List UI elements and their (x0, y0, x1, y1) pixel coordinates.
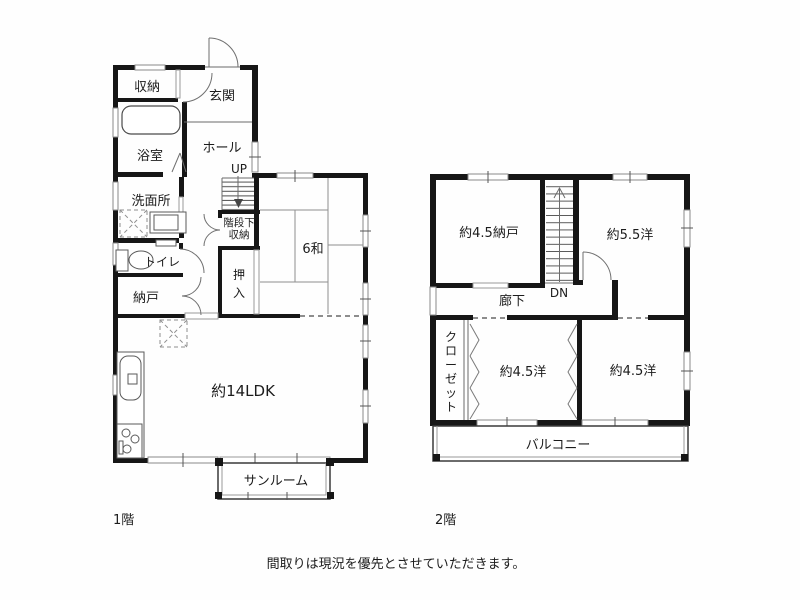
room-label-washitsu: 6和 (302, 242, 323, 257)
room-label-yokushitsu: 浴室 (137, 148, 163, 164)
room-label-roka: 廊下 (499, 293, 525, 309)
room-label-genkan: 玄関 (209, 89, 235, 104)
room-label-closet-4: ゼ (445, 372, 457, 386)
stairs-dn-label: DN (550, 286, 568, 300)
floorplan-canvas: 収納 玄関 浴室 ホール UP 洗面所 階段下 収納 トイレ 納戸 押 入 6和… (0, 0, 800, 600)
room-label-closet-3: ー (445, 358, 457, 372)
room-label-shuno: 収納 (134, 80, 160, 95)
room-label-closet-2: ロ (445, 344, 457, 358)
room-label-closet-1: ク (445, 330, 457, 344)
refrigerator-area (160, 320, 187, 347)
room-label-sunroom: サンルーム (244, 474, 309, 489)
room-label-hall: ホール (202, 141, 241, 156)
room-label-oshiire-1: 押 (233, 268, 245, 282)
floor2-stairs (546, 180, 573, 282)
room-label-nando45: 約4.5納戸 (459, 226, 519, 241)
floor1-sliding-doors (176, 67, 363, 467)
room-label-yo55: 約5.5洋 (607, 228, 654, 243)
floor2-plan: 約4.5納戸 DN 約5.5洋 廊下 ク ロ ー ゼ ッ ト 約4.5洋 約4.… (430, 171, 693, 528)
floor2-label: 2階 (435, 513, 456, 528)
room-label-kaidanshita-2: 収納 (229, 228, 250, 241)
floor1-plan: 収納 玄関 浴室 ホール UP 洗面所 階段下 収納 トイレ 納戸 押 入 6和… (113, 38, 371, 528)
room-label-nando1f: 納戸 (133, 291, 159, 306)
washing-machine-area (120, 210, 147, 237)
room-label-closet-5: ッ (445, 386, 457, 400)
floorplan-svg: 収納 玄関 浴室 ホール UP 洗面所 階段下 収納 トイレ 納戸 押 入 6和… (0, 0, 800, 600)
bathtub (122, 106, 180, 134)
room-label-oshiire-2: 入 (233, 286, 245, 300)
room-label-kaidanshita-1: 階段下 (223, 216, 255, 229)
room-label-closet-6: ト (445, 400, 457, 414)
stairs-up-label: UP (231, 162, 247, 176)
room-label-yo45-left: 約4.5洋 (500, 365, 547, 380)
caption-text: 間取りは現況を優先とさせていただきます。 (267, 557, 526, 572)
vanity-unit (150, 212, 186, 233)
kitchen-sink (120, 356, 141, 400)
room-label-balcony: バルコニー (526, 438, 591, 453)
kitchen-stove (117, 424, 142, 458)
room-label-toilet: トイレ (144, 255, 180, 269)
floor1-label: 1階 (113, 513, 134, 528)
floor1-stairs (222, 176, 254, 210)
floor2-door-arcs (583, 252, 611, 280)
room-label-senmenjo: 洗面所 (131, 194, 170, 209)
room-label-yo45-right: 約4.5洋 (610, 364, 657, 379)
room-label-ldk: 約14LDK (211, 382, 276, 400)
